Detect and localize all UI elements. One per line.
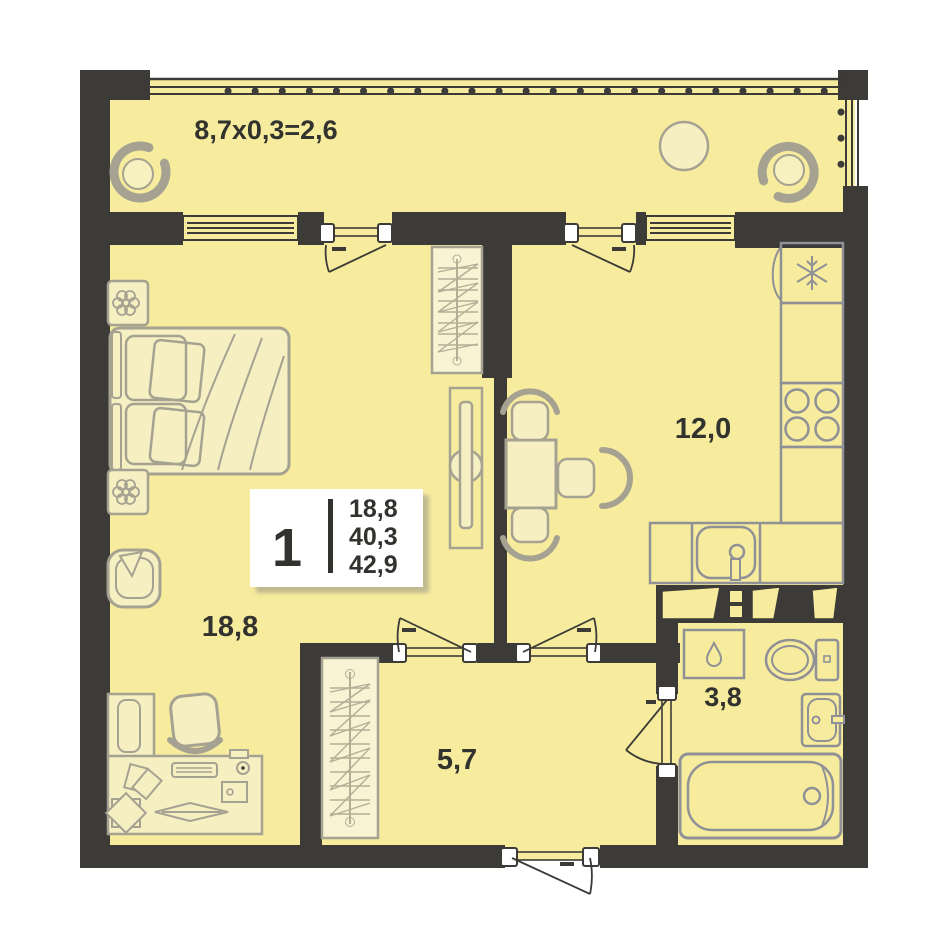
living-area-value: 18,8 xyxy=(349,495,398,523)
round-table-icon xyxy=(660,122,708,170)
stats-card: 1 18,8 40,3 42,9 xyxy=(250,489,423,587)
door-entrance xyxy=(501,848,599,894)
wardrobe-icon xyxy=(432,247,482,373)
total-with-balcony-value: 42,9 xyxy=(349,551,398,579)
plant-icon xyxy=(108,281,148,325)
kitchen-label: 12,0 xyxy=(675,413,731,445)
living-label: 18,8 xyxy=(202,611,258,643)
hallway-label: 5,7 xyxy=(437,744,477,776)
total-area-value: 40,3 xyxy=(349,523,398,551)
double-bed-icon xyxy=(110,328,289,474)
bathroom-label: 3,8 xyxy=(704,682,742,712)
rooms-count: 1 xyxy=(272,518,302,578)
shelf-icon xyxy=(108,694,154,758)
floorplan-svg: 8,7x0,3=2,6 18,8 12,0 5,7 3,8 1 18,8 40,… xyxy=(0,0,947,948)
balcony-label: 8,7x0,3=2,6 xyxy=(194,115,337,145)
armchair-icon xyxy=(108,550,160,607)
hallway-furniture xyxy=(322,658,378,838)
plant-icon xyxy=(108,470,148,514)
stats-divider xyxy=(328,499,333,573)
desk-chair-icon xyxy=(170,693,221,751)
wardrobe-icon xyxy=(322,658,378,838)
floorplan: 8,7x0,3=2,6 18,8 12,0 5,7 3,8 1 18,8 40,… xyxy=(0,0,947,948)
desk-icon xyxy=(106,750,262,834)
